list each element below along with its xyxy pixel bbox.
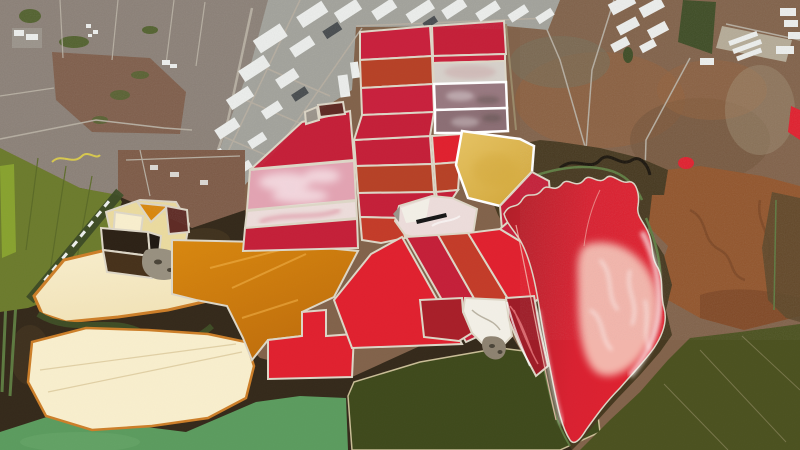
terrain-grain	[0, 0, 800, 450]
satellite-image	[0, 0, 800, 450]
salt-ponds-scene	[0, 0, 800, 450]
